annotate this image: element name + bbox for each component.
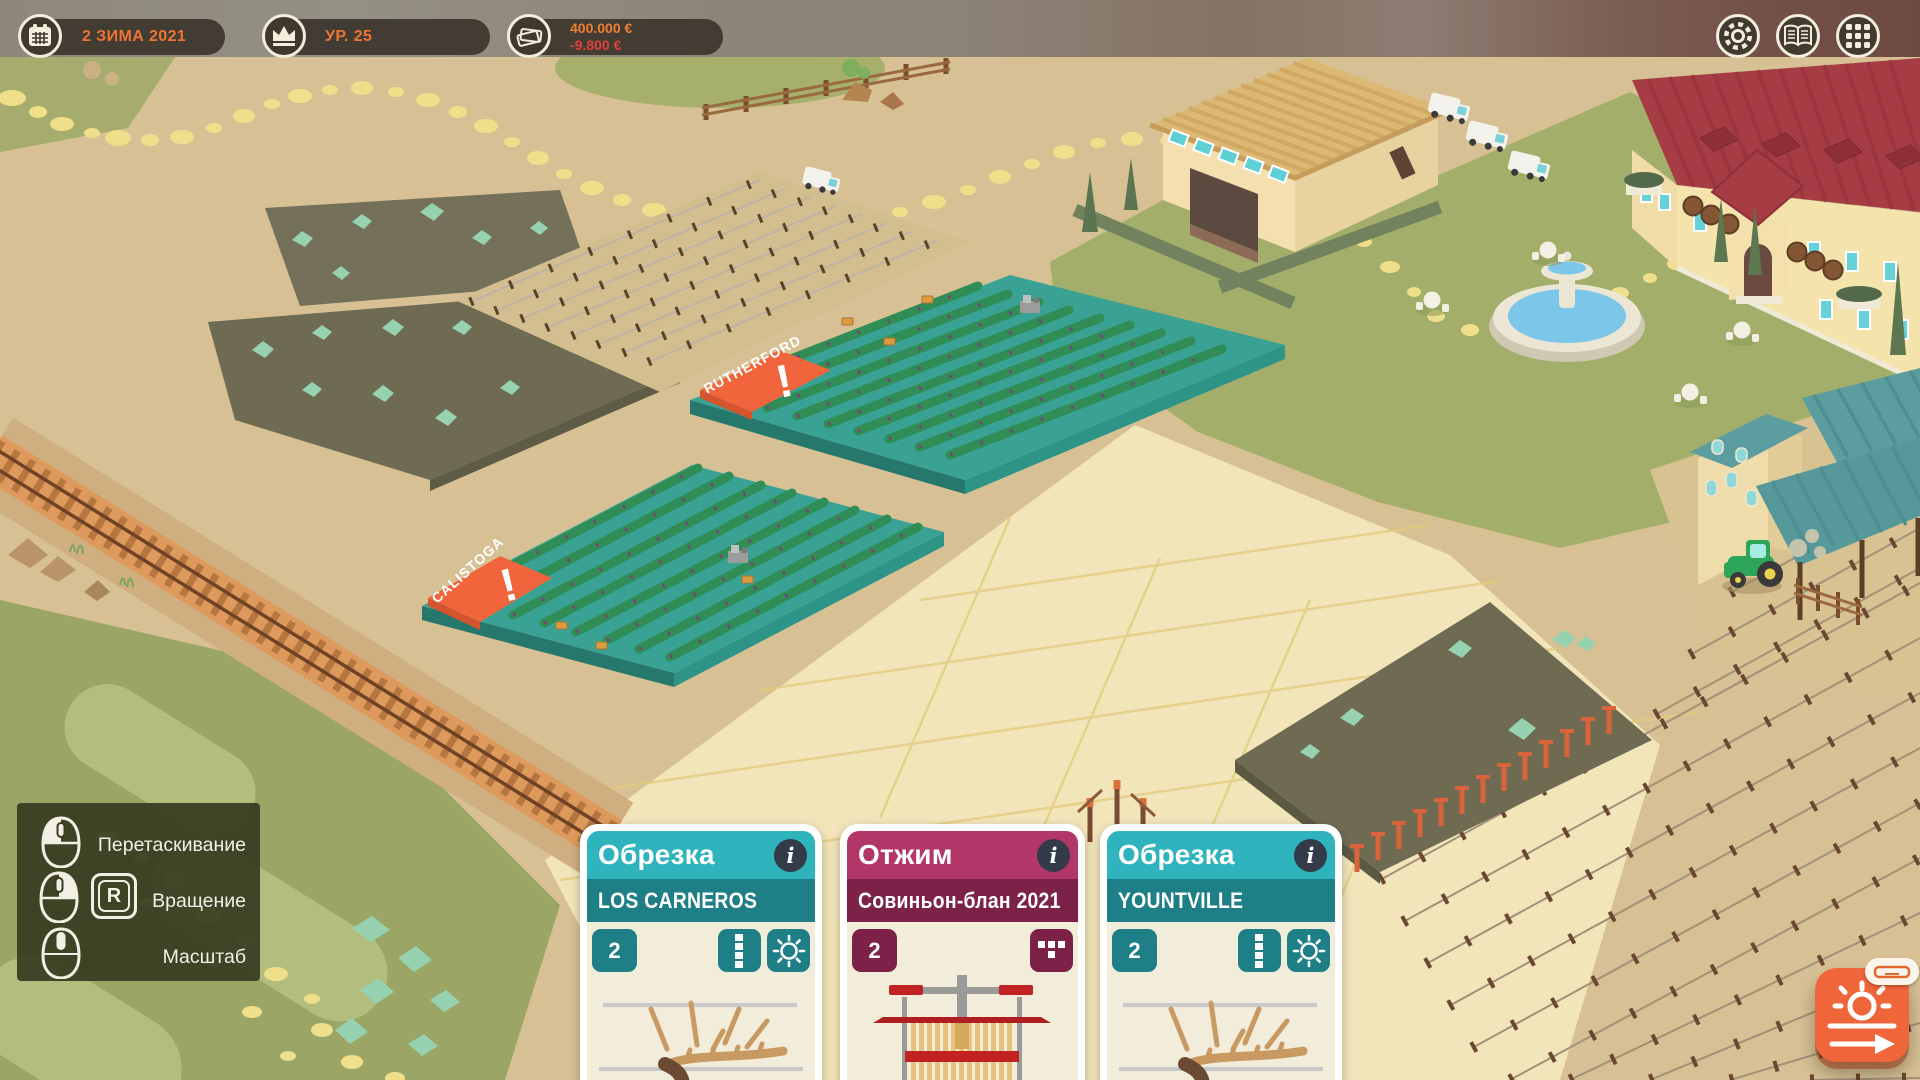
key-r-label: R — [98, 880, 130, 912]
field-machine — [1020, 295, 1040, 313]
mouse-controls-legend: Перетаскивание R Вращение Масштаб — [17, 803, 260, 981]
apps-grid-icon — [1845, 23, 1871, 49]
key-r: R — [91, 873, 137, 919]
season-sun-icon[interactable] — [767, 929, 810, 972]
queue-list-icon[interactable] — [1238, 929, 1281, 972]
season-sun-icon[interactable] — [1287, 929, 1330, 972]
vine-pruning-illustration — [1107, 979, 1335, 1080]
level-label: УР. 25 — [325, 19, 372, 55]
task-card-pressing-sauvignon-blanc[interactable]: Отжим i Совиньон-блан 2021 2 — [840, 824, 1085, 1080]
crown-icon — [262, 14, 306, 58]
task-card-pruning-los-carneros[interactable]: Обрезка i LOS CARNEROS 2 — [580, 824, 822, 1080]
money-delta: -9.800 € — [570, 37, 632, 54]
card-title: Обрезка — [1118, 839, 1235, 871]
wine-press-illustration — [847, 975, 1078, 1080]
card-subtitle: LOS CARNEROS — [598, 888, 757, 914]
mouse-left-button-icon — [41, 816, 81, 868]
field-machine — [728, 545, 748, 563]
count-badge: 2 — [1112, 929, 1157, 972]
calendar-icon — [18, 14, 62, 58]
queue-list-icon[interactable] — [718, 929, 761, 972]
info-icon[interactable]: i — [1294, 839, 1327, 872]
card-subtitle: Совиньон-блан 2021 — [858, 888, 1061, 914]
task-card-pruning-yountville[interactable]: Обрезка i YOUNTVILLE 2 — [1100, 824, 1342, 1080]
journal-icon — [1783, 23, 1813, 49]
card-title: Обрезка — [598, 839, 715, 871]
game-screen: RUTHERFORD ! CALISTOGA ! — [0, 0, 1920, 1080]
mouse-right-button-icon — [39, 871, 79, 923]
vine-pruning-illustration — [587, 979, 815, 1080]
settings-button[interactable] — [1716, 14, 1760, 58]
legend-rotate-label: Вращение — [152, 890, 246, 913]
card-title: Отжим — [858, 839, 953, 871]
legend-drag-label: Перетаскивание — [98, 834, 246, 857]
legend-zoom-label: Масштаб — [163, 946, 246, 969]
count-badge: 2 — [852, 929, 897, 972]
journal-button[interactable] — [1776, 14, 1820, 58]
apps-menu-button[interactable] — [1836, 14, 1880, 58]
count-badge: 2 — [592, 929, 637, 972]
money-amount: 400.000 € — [570, 20, 632, 37]
gear-icon — [1723, 21, 1753, 51]
spacebar-key-icon — [1873, 965, 1911, 979]
spacebar-key-hint — [1865, 958, 1919, 985]
banknotes-icon — [507, 14, 551, 58]
card-subtitle: YOUNTVILLE — [1118, 888, 1243, 914]
next-day-button[interactable] — [1815, 968, 1909, 1062]
date-label: 2 ЗИМА 2021 — [82, 19, 186, 55]
info-icon[interactable]: i — [774, 839, 807, 872]
top-hud-bar: 2 ЗИМА 2021 УР. 25 400.000 € -9.800 € — [0, 0, 1920, 57]
press-parts-icon[interactable] — [1030, 929, 1073, 972]
info-icon[interactable]: i — [1037, 839, 1070, 872]
mouse-wheel-icon — [41, 927, 81, 979]
